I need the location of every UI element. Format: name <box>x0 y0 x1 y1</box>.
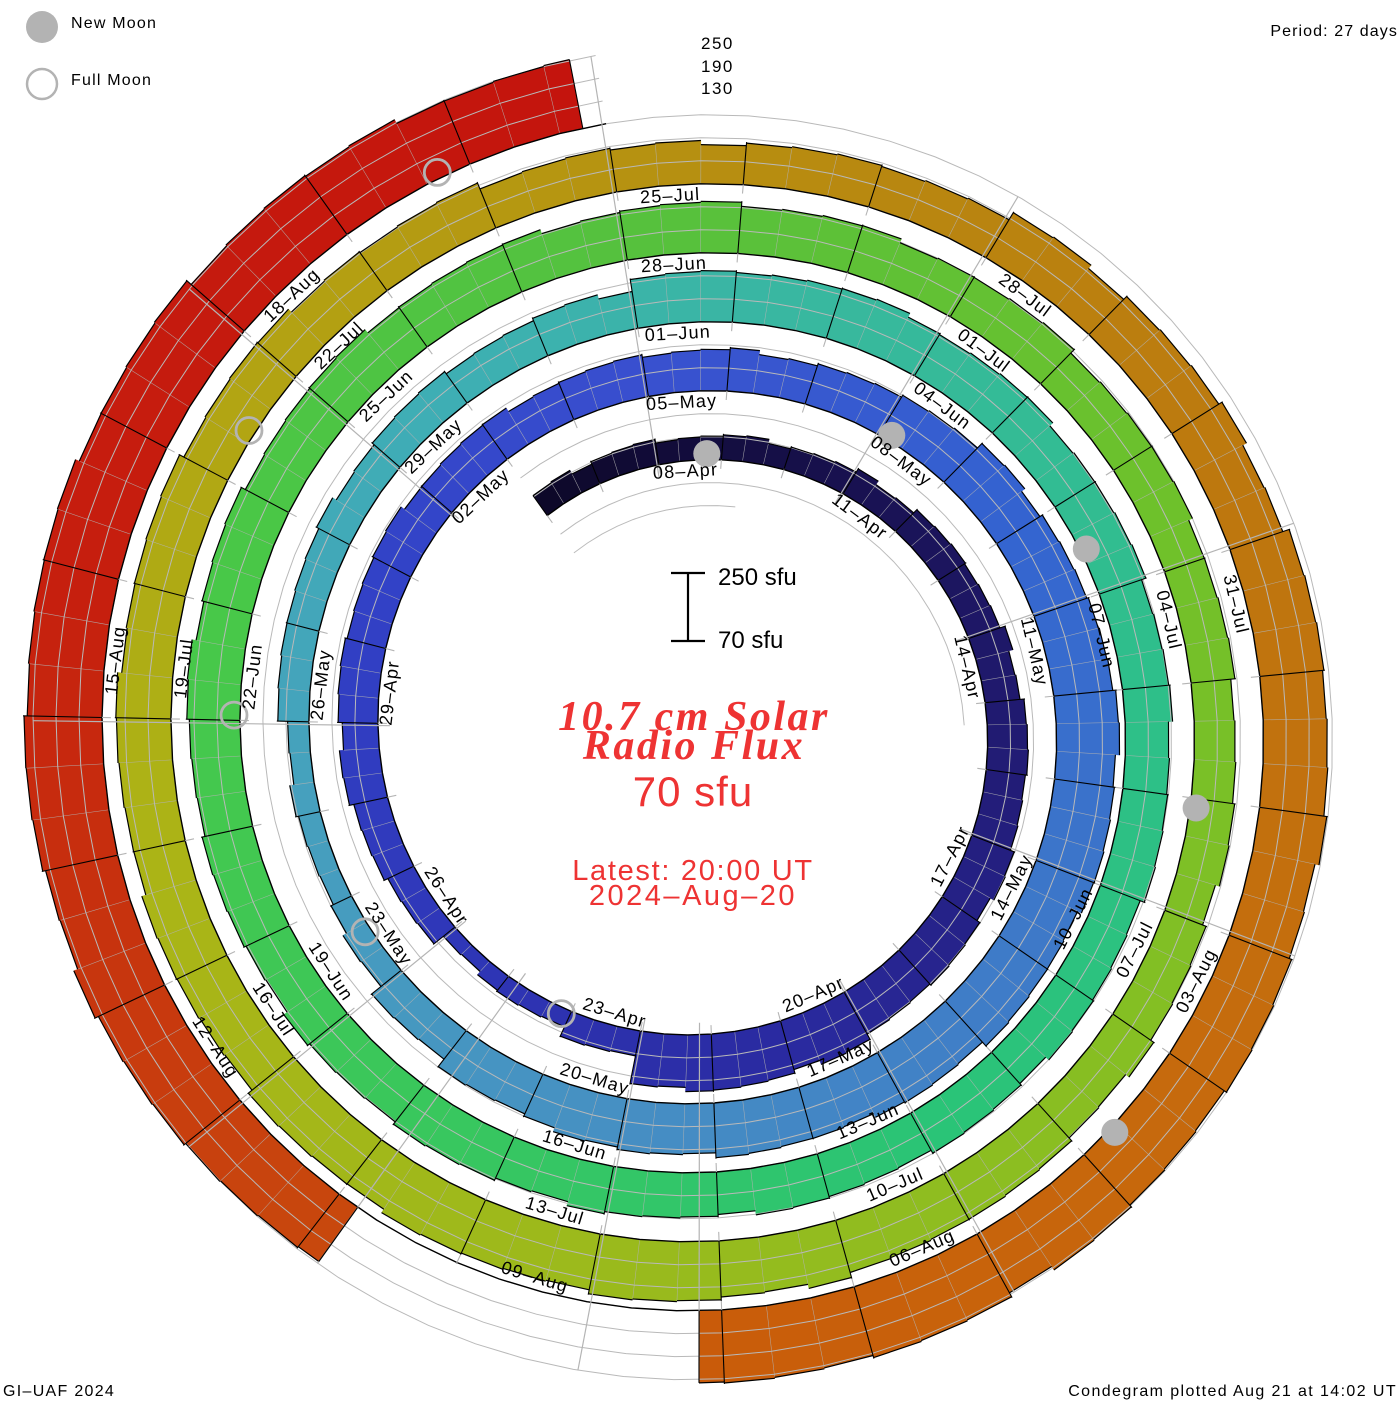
svg-text:25–Jul: 25–Jul <box>639 184 700 207</box>
svg-text:130: 130 <box>701 79 734 98</box>
svg-text:70 sfu: 70 sfu <box>718 627 783 654</box>
svg-text:70 sfu: 70 sfu <box>633 768 753 815</box>
svg-text:2024–Aug–20: 2024–Aug–20 <box>589 880 797 912</box>
svg-text:250 sfu: 250 sfu <box>718 564 797 591</box>
svg-text:New Moon: New Moon <box>71 15 157 32</box>
svg-text:Condegram plotted Aug 21 at 14: Condegram plotted Aug 21 at 14:02 UT <box>1068 1383 1397 1400</box>
svg-text:GI–UAF 2024: GI–UAF 2024 <box>3 1383 115 1400</box>
svg-text:01–Jun: 01–Jun <box>644 321 711 345</box>
svg-text:Radio Flux: Radio Flux <box>582 723 805 769</box>
svg-text:190: 190 <box>701 57 734 76</box>
svg-text:28–Jun: 28–Jun <box>640 253 707 277</box>
svg-text:05–May: 05–May <box>646 390 718 414</box>
svg-text:08–Apr: 08–Apr <box>652 459 718 483</box>
svg-text:Full Moon: Full Moon <box>71 72 152 89</box>
svg-text:250: 250 <box>701 34 734 53</box>
svg-text:Period: 27 days: Period: 27 days <box>1270 23 1398 40</box>
